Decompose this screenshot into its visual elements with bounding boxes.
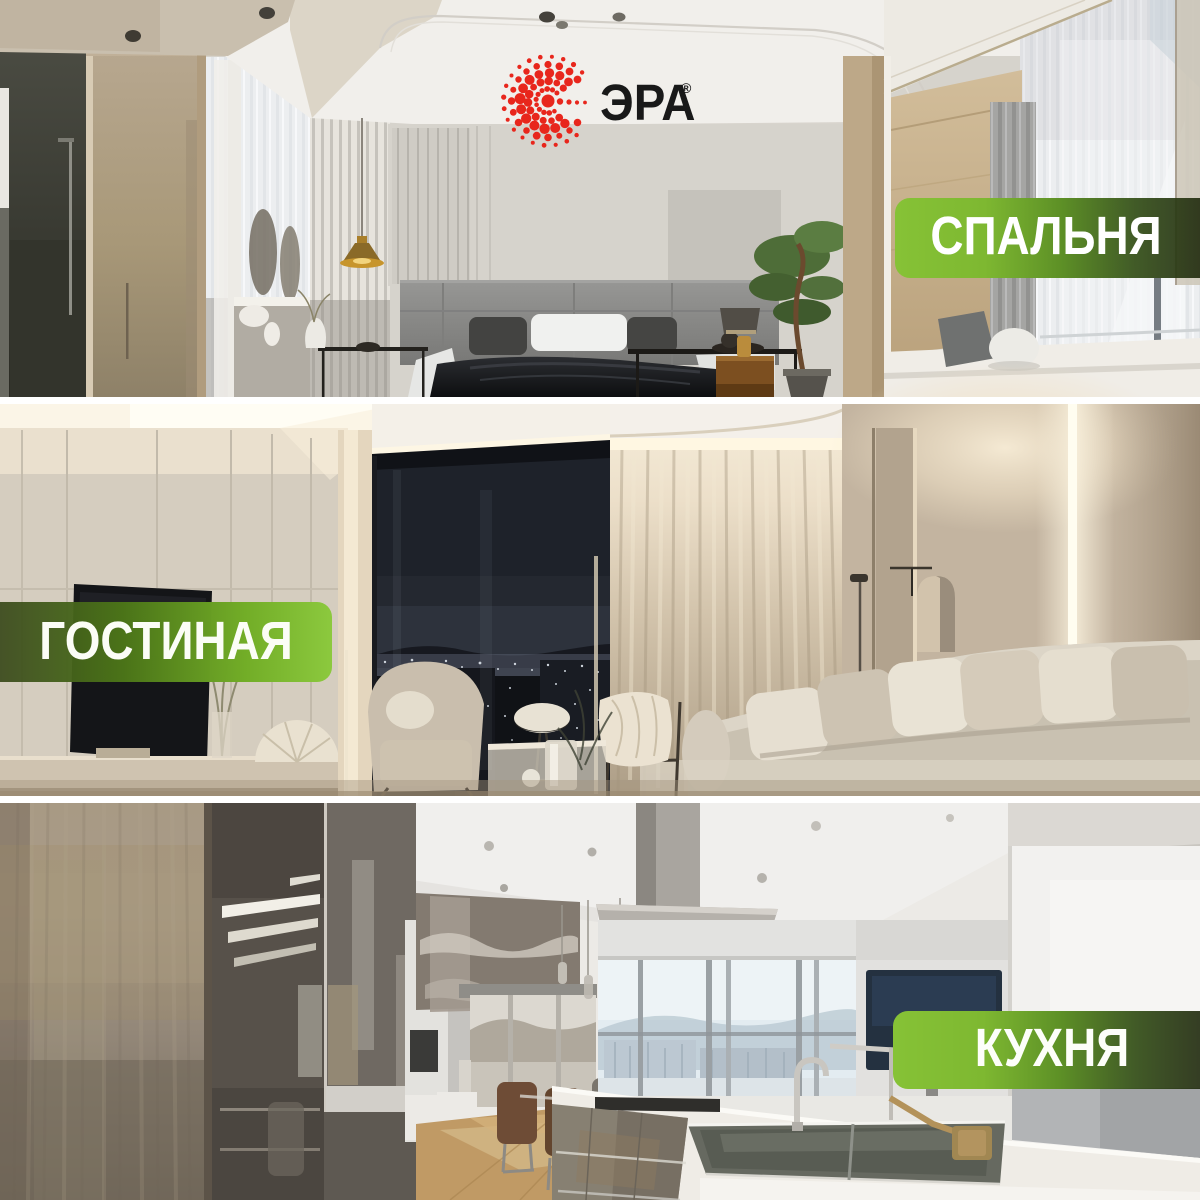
- svg-text:ГОСТИНАЯ: ГОСТИНАЯ: [39, 611, 292, 671]
- svg-text:СПАЛЬНЯ: СПАЛЬНЯ: [930, 206, 1161, 266]
- svg-text:КУХНЯ: КУХНЯ: [975, 1018, 1129, 1078]
- svg-text:®: ®: [681, 80, 692, 96]
